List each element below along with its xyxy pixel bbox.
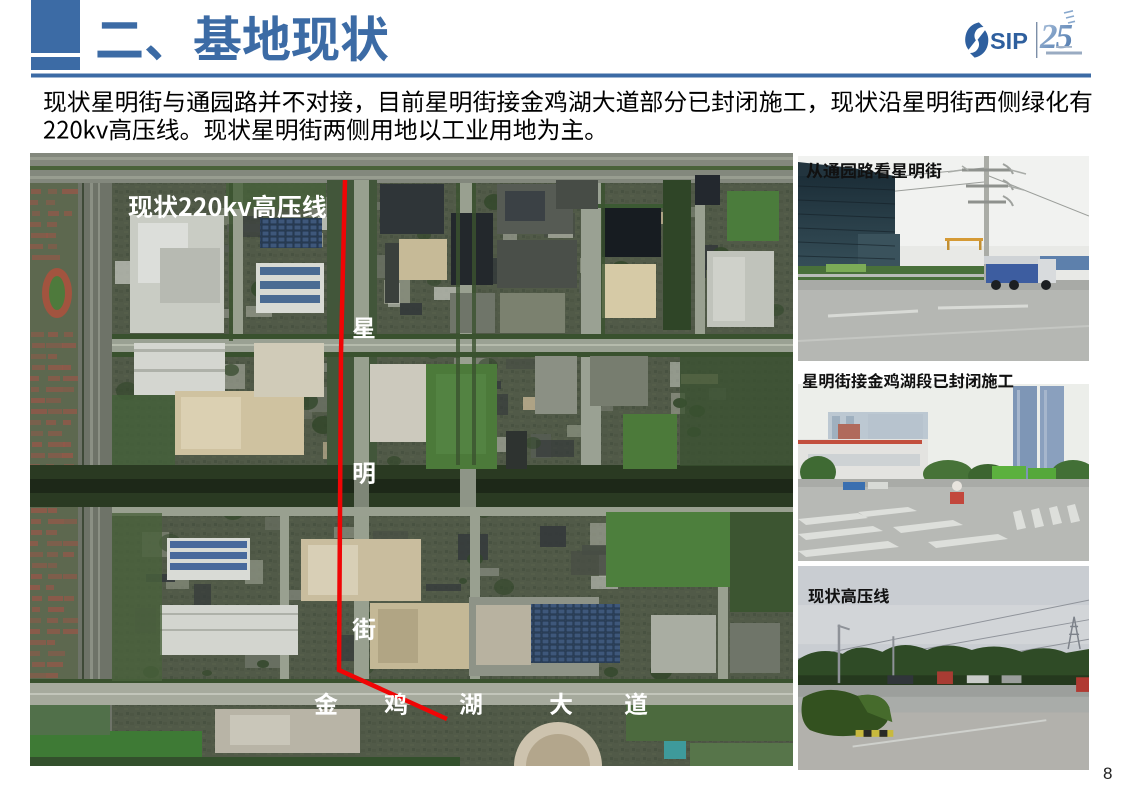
svg-text:8: 8 <box>1103 764 1112 783</box>
svg-text:SIP: SIP <box>990 28 1028 54</box>
svg-text:25: 25 <box>1039 17 1073 56</box>
